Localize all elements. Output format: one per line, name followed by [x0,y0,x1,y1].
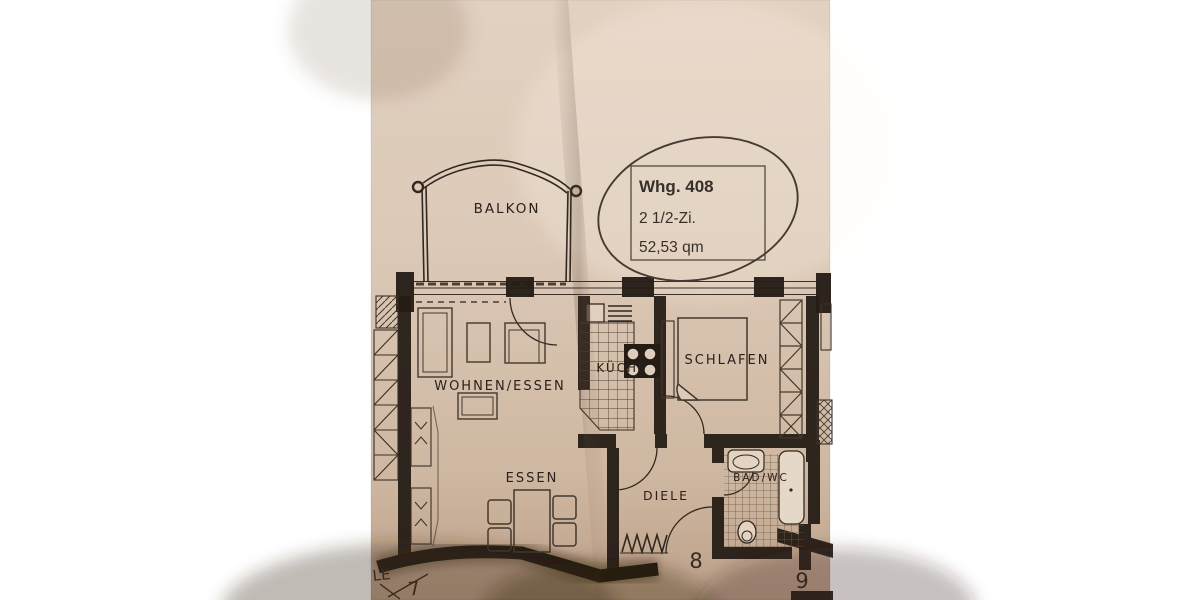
neighbor-hatched-wall [376,296,398,328]
stove-burner [627,348,639,360]
bathroom [724,450,804,547]
wall-hallway-bath-upper [712,448,724,463]
wall-pier-2 [622,277,654,297]
toilet [738,521,756,543]
hallway-label: DIELE [643,488,689,503]
wall-pier-1 [506,277,534,297]
annotation-area: 52,53 qm [639,239,704,256]
balcony-label: BALKON [474,201,541,217]
wall-bedroom-bottom [704,434,808,448]
wall-stub-left [600,434,616,448]
wall-stub-center [655,434,667,448]
annotation-rooms: 2 1/2-Zi. [639,210,696,227]
annotation-apartment: Whg. 408 [639,177,714,196]
kitchen-label: KÜCHE [596,359,647,375]
living-dining-label: WOHNEN/ESSEN [434,379,566,394]
dining-label: ESSEN [506,471,559,486]
bathtub-drain [789,488,792,491]
screenshot-canvas: BALKON [0,0,1200,600]
wall-pier-3 [754,277,784,297]
wall-right-lower [808,440,820,524]
wall-hallway-bath-lower [712,497,724,552]
bedroom-label: SCHLAFEN [685,353,770,368]
bathtub [779,451,804,524]
wall-dining-hallway [607,448,619,574]
wall-left [398,296,411,560]
door-number-8: 8 [689,549,702,573]
stove-burner [644,348,656,360]
bathroom-label: BAD/WC [733,472,789,484]
floorplan-photo: BALKON [0,0,1200,600]
balcony-post-left [413,182,423,192]
